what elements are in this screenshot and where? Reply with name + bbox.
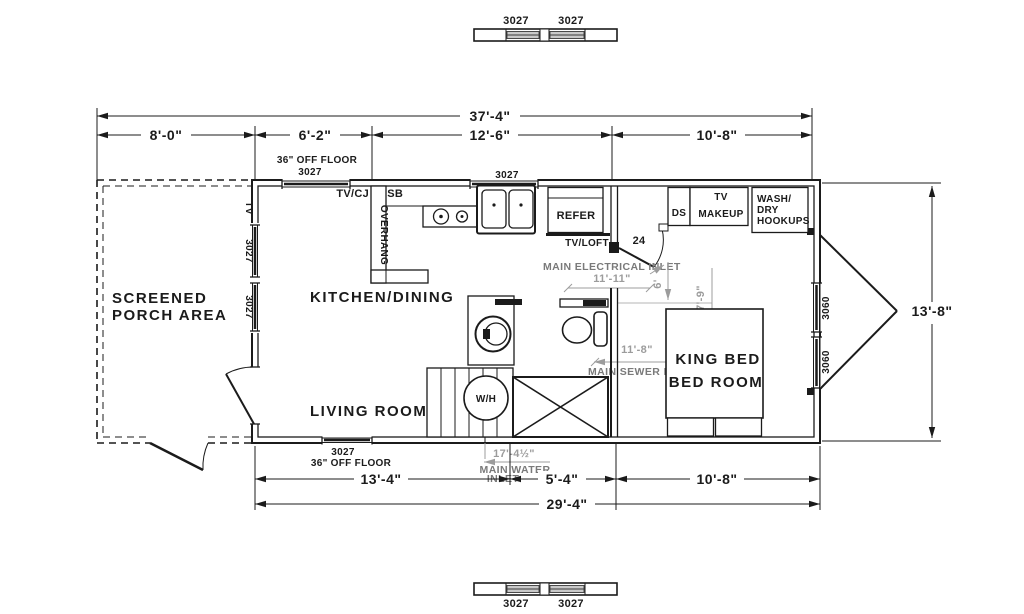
refrigerator: REFER — [548, 188, 603, 233]
top-window-label-2: 3027 — [558, 15, 584, 27]
top-dimensions: 37'-4" 8'-0" 6'-2" 12'-6" 10'-8" 36" OFF… — [97, 108, 812, 186]
shower-box — [513, 377, 608, 437]
porch-entry-door — [226, 367, 260, 424]
kitchen-dining-label: KITCHEN/DINING — [310, 289, 454, 306]
dim-porch-width: 8'-0" — [150, 127, 183, 143]
living-room-label: LIVING ROOM — [310, 403, 427, 420]
wash-dry-hookups: WASH/ DRY HOOKUPS — [752, 188, 810, 233]
off-floor-note-top: 36" OFF FLOOR — [277, 155, 358, 166]
cooktop — [423, 206, 477, 227]
refer-label: REFER — [557, 210, 596, 222]
overhang-label: OVERHANG — [378, 205, 389, 265]
porch-label-2: PORCH AREA — [112, 307, 227, 324]
right-window-label-1: 3060 — [821, 296, 832, 320]
dim-seg-12-6: 12'-6" — [470, 127, 511, 143]
screened-porch: SCREENED PORCH AREA — [97, 180, 252, 470]
tv-label: TV — [714, 192, 727, 203]
dim-bed-clear: 7'-9" — [695, 285, 707, 311]
bottom-window-label-2: 3027 — [558, 598, 584, 610]
left-wall-openings: TV 3027 3027 — [226, 201, 260, 424]
dim-right-height: 13'-8" — [912, 303, 953, 319]
wash-label: WASH/ — [757, 194, 791, 205]
right-dimension: 13'-8" — [822, 183, 953, 441]
dim-overall-bottom: 29'-4" — [547, 496, 588, 512]
off-floor-note-bottom: 36" OFF FLOOR — [311, 458, 392, 469]
dim-seg-10-8: 10'-8" — [697, 127, 738, 143]
dim-bot-10-8: 10'-8" — [697, 471, 738, 487]
top-wall-window-label-1: 3027 — [298, 167, 322, 178]
floor-plan-canvas: 3027 3027 3027 3027 37'-4" 8'-0" 6'-2" 1… — [0, 0, 1024, 614]
left-window-label-2: 3027 — [243, 295, 254, 319]
dim-sewer-x: 11'-8" — [621, 344, 653, 356]
porch-label-1: SCREENED — [112, 290, 207, 307]
king-bed: KING BED BED ROOM — [666, 309, 763, 436]
bed-room-label: BED ROOM — [669, 374, 764, 391]
right-window-label-2: 3060 — [821, 350, 832, 374]
dim-seg-6-2: 6'-2" — [299, 127, 332, 143]
dim-electrical-y: 6' — [652, 279, 664, 289]
dim-bot-5-4: 5'-4" — [546, 471, 579, 487]
dim-bot-13-4: 13'-4" — [361, 471, 402, 487]
tv-loft-label: TV/LOFT — [565, 238, 609, 249]
floor-plan-page: 3027 3027 3027 3027 37'-4" 8'-0" 6'-2" 1… — [0, 0, 1024, 614]
top-window-symbol: 3027 3027 — [474, 15, 617, 41]
bottom-window-wall-label: 3027 — [331, 447, 355, 458]
tv-cj-label: TV/CJ — [336, 188, 369, 200]
kitchen-sink — [477, 186, 535, 234]
king-bed-label: KING BED — [675, 351, 760, 368]
water-heater-label: W/H — [476, 394, 496, 405]
bath-vanity — [560, 299, 608, 307]
makeup-label: MAKEUP — [698, 209, 743, 220]
porch-screen-door — [150, 443, 208, 470]
washer — [468, 296, 522, 365]
dry-label: DRY — [757, 205, 779, 216]
left-window-label-1: 3027 — [243, 239, 254, 263]
hookups-label: HOOKUPS — [757, 216, 810, 227]
top-window-label-1: 3027 — [503, 15, 529, 27]
porch-tv-label: TV — [243, 201, 254, 214]
door-24-label: 24 — [633, 235, 646, 247]
bottom-window-label-1: 3027 — [503, 598, 529, 610]
ds-label: DS — [672, 208, 687, 219]
bedroom-counters: DS TV MAKEUP WASH/ DRY HOOKUPS — [668, 188, 810, 233]
dim-electrical-x: 11'-11" — [593, 273, 631, 285]
water-heater: W/H — [464, 376, 508, 420]
dim-overall-top: 37'-4" — [470, 108, 511, 124]
dim-water-x: 17'-4½" — [493, 448, 535, 460]
bottom-window-symbol: 3027 3027 — [474, 583, 617, 610]
